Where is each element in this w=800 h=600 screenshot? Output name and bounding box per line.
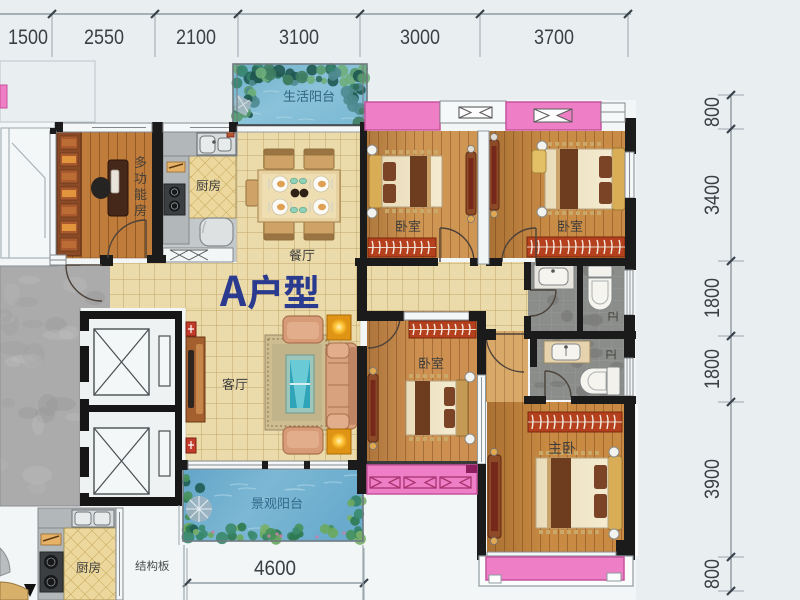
svg-text:1500: 1500	[8, 26, 48, 49]
svg-text:4600: 4600	[254, 557, 296, 580]
svg-text:1800: 1800	[701, 349, 724, 389]
svg-text:3700: 3700	[534, 26, 574, 49]
svg-text:3900: 3900	[701, 459, 724, 499]
svg-text:1800: 1800	[701, 278, 724, 318]
svg-text:2550: 2550	[84, 26, 124, 49]
svg-text:3400: 3400	[701, 175, 724, 215]
svg-text:2100: 2100	[176, 26, 216, 49]
svg-text:3000: 3000	[400, 26, 440, 49]
svg-text:3100: 3100	[279, 26, 319, 49]
svg-text:800: 800	[701, 97, 724, 127]
svg-text:800: 800	[701, 559, 724, 589]
